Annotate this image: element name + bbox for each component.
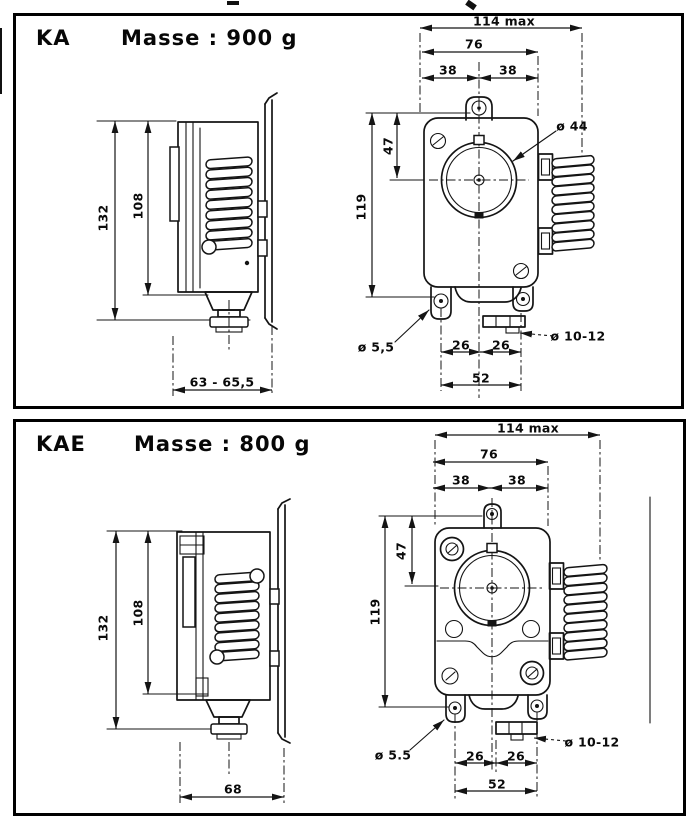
dim-pitch-left-kae: 38 — [452, 473, 470, 488]
dim-height-front-kae: 119 — [368, 599, 383, 626]
dim-width-body-kae: 76 — [480, 447, 498, 462]
callout-mount-hole-kae: ø 5.5 — [375, 748, 412, 763]
dim-knob-offset-ka: 47 — [381, 137, 396, 155]
mass-label-kae: Masse : 800 g — [134, 432, 311, 456]
dim-height-overall-kae: 132 — [96, 615, 111, 642]
dim-width-max-kae: 114 max — [497, 421, 559, 436]
callout-gland-kae: ø 10-12 — [564, 735, 619, 750]
mass-label-ka: Masse : 900 g — [121, 26, 298, 50]
dim-height-body-ka: 108 — [131, 193, 146, 220]
dim-foot-right-ka: 26 — [492, 338, 510, 353]
dim-foot-span-ka: 52 — [472, 371, 490, 386]
dim-height-body-kae: 108 — [131, 600, 146, 627]
dim-foot-left-ka: 26 — [452, 338, 470, 353]
dim-foot-span-kae: 52 — [488, 777, 506, 792]
dim-width-max-ka: 114 max — [473, 14, 535, 29]
callout-gland-ka: ø 10-12 — [550, 329, 605, 344]
dim-foot-left-kae: 26 — [466, 749, 484, 764]
dim-pitch-left-ka: 38 — [439, 63, 457, 78]
callout-mount-hole-ka: ø 5,5 — [358, 340, 395, 355]
datasheet-page: KA Masse : 900 g 114 max 76 38 38 47 119… — [0, 0, 700, 826]
dim-depth-kae: 68 — [224, 782, 242, 797]
dim-width-body-ka: 76 — [465, 37, 483, 52]
labels: KA Masse : 900 g 114 max 76 38 38 47 119… — [0, 0, 700, 826]
dim-height-front-ka: 119 — [354, 194, 369, 221]
dim-height-overall-ka: 132 — [96, 205, 111, 232]
dim-foot-right-kae: 26 — [507, 749, 525, 764]
dim-knob-offset-kae: 47 — [394, 542, 409, 560]
callout-knob-diameter-ka: ø 44 — [556, 119, 588, 134]
dim-pitch-right-ka: 38 — [499, 63, 517, 78]
model-name-kae: KAE — [36, 432, 86, 456]
model-name-ka: KA — [36, 26, 71, 50]
dim-depth-ka: 63 - 65,5 — [190, 375, 255, 390]
dim-pitch-right-kae: 38 — [508, 473, 526, 488]
